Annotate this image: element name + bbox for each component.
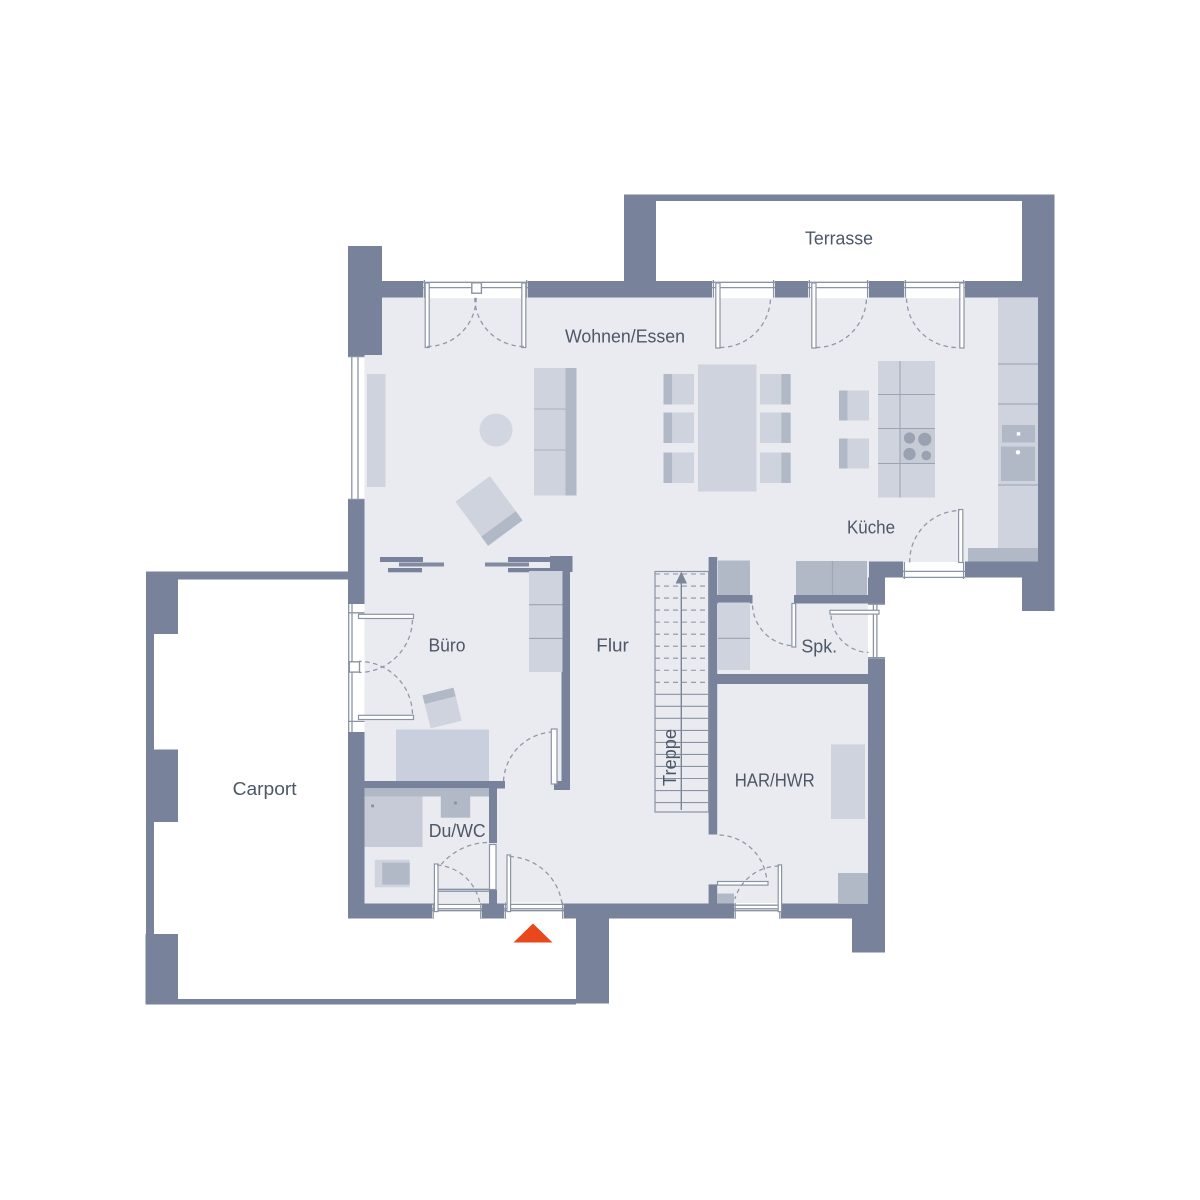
svg-text:Terrasse: Terrasse [805,229,873,249]
svg-text:Du/WC: Du/WC [429,821,486,841]
svg-text:HAR/HWR: HAR/HWR [735,771,815,791]
svg-text:Küche: Küche [847,518,895,538]
svg-text:Treppe: Treppe [660,729,680,786]
svg-text:Büro: Büro [429,636,466,656]
svg-text:Wohnen/Essen: Wohnen/Essen [565,327,685,347]
svg-text:Carport: Carport [233,779,297,799]
svg-text:Spk.: Spk. [801,637,837,657]
svg-text:Flur: Flur [596,636,629,656]
